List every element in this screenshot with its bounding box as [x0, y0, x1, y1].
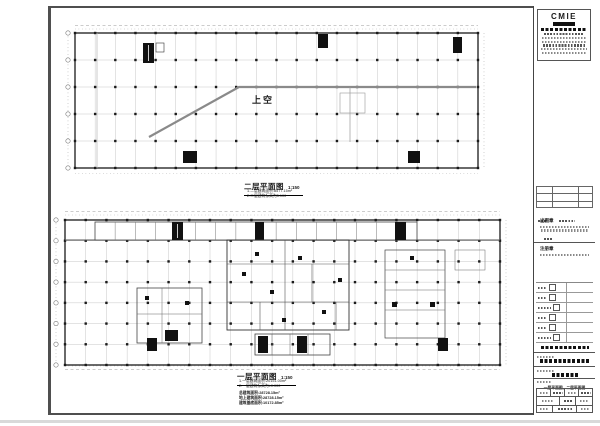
- first-floor-plan: [50, 206, 512, 376]
- titleblock-grid: [536, 388, 593, 413]
- issue-stamp-area: 出图章: [537, 218, 592, 233]
- void-label: 上空: [252, 93, 274, 106]
- page-edge: [0, 420, 600, 423]
- subproject-row: [537, 368, 592, 378]
- plan1-outline: [65, 220, 500, 365]
- second-floor-plan: [63, 21, 490, 181]
- plan2-axis-bubbles: [66, 31, 70, 170]
- plan1-axis-bubbles: [54, 218, 58, 367]
- company-info-lines: [538, 28, 590, 54]
- area-summary: 总建筑面积:28728.15m² 地上建筑面积:28728.15m² 建筑基底面…: [239, 391, 284, 407]
- project-name-line: [537, 344, 592, 351]
- note-line: 1.一层建筑面积:20151.00m²: [239, 379, 286, 384]
- company-logo-text: CMIE: [538, 12, 590, 21]
- revision-table-header: [536, 209, 593, 215]
- note-line: 2.二层建筑标高为5.100: [247, 194, 292, 199]
- summary-line: 建筑基底面积:10172.85m²: [239, 401, 284, 406]
- second-floor-notes: 1.二层建筑面积:8577.15m² 2.二层建筑标高为5.100: [247, 189, 292, 199]
- company-logo-icon: [553, 22, 575, 26]
- license-stamp-label: 注册章: [537, 246, 592, 252]
- note-line: 2.一层建筑标高为±0.000: [239, 384, 286, 389]
- signature-table: [536, 282, 593, 342]
- client-name-row: [537, 354, 592, 364]
- revision-table: [536, 186, 593, 208]
- title-block: CMIE 出图章 注册章: [533, 6, 595, 415]
- company-logo-box: CMIE: [537, 9, 591, 61]
- first-floor-notes: 1.一层建筑面积:20151.00m² 2.一层建筑标高为±0.000: [239, 379, 286, 389]
- issue-stamp-label: 出图章: [537, 218, 592, 224]
- license-stamp-area: 注册章: [537, 246, 592, 257]
